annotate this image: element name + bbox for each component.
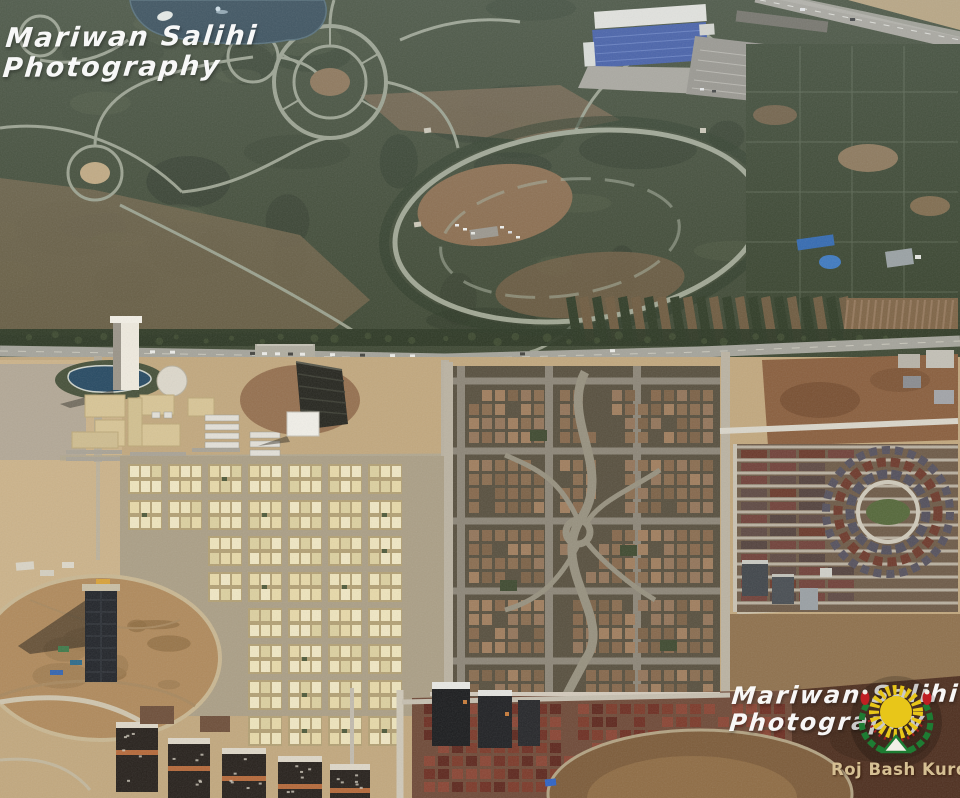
watermark-top-line1: Mariwan Salihi [4, 21, 259, 54]
logo-caption: Roj Bash Kurdistan [831, 760, 960, 779]
tulip-left-tip [863, 690, 868, 695]
tulip-right-tip [925, 690, 930, 695]
watermark-top: Mariwan Salihi Photography [1, 21, 259, 84]
aerial-photo: Mariwan Salihi Photography Mariwan Salih… [0, 0, 960, 798]
watermark-top-line2: Photography [1, 52, 256, 85]
roj-bash-kurdistan-logo [848, 674, 944, 770]
sun-icon [880, 696, 912, 728]
haze [0, 0, 960, 798]
